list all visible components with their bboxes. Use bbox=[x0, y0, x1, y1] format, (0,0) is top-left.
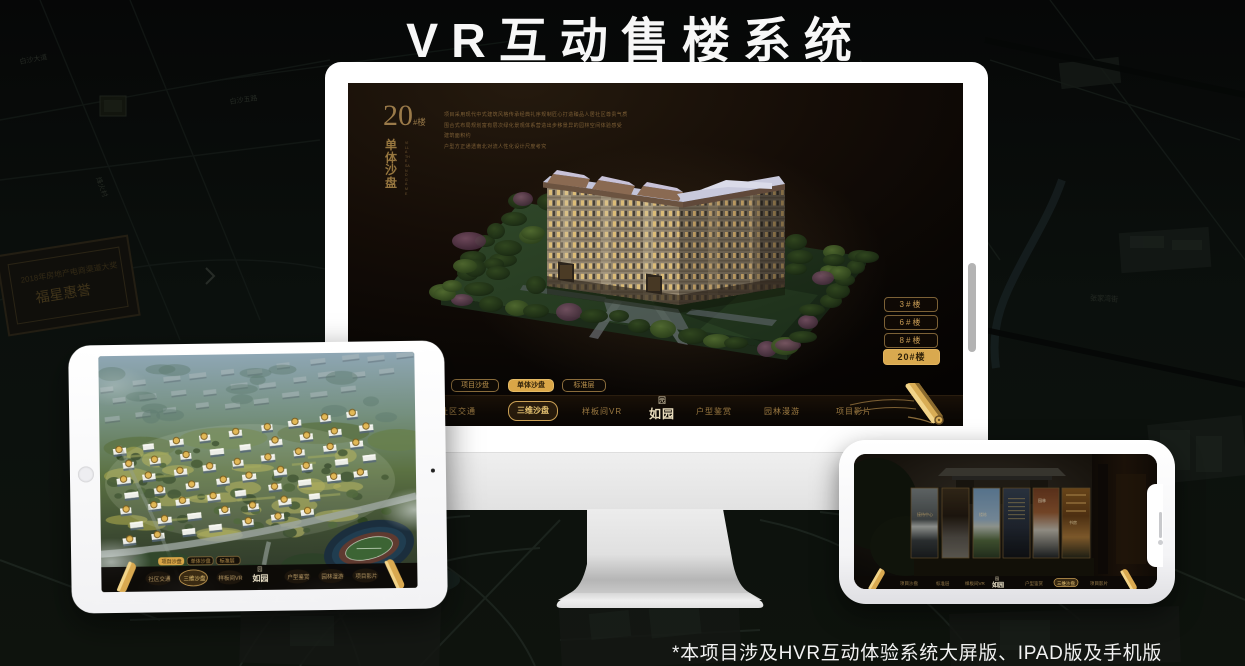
svg-text:样板间VR: 样板间VR bbox=[965, 580, 986, 587]
svg-text:如园: 如园 bbox=[992, 581, 1004, 589]
svg-text:项目影片: 项目影片 bbox=[1090, 580, 1108, 587]
svg-text:户型鉴赏: 户型鉴赏 bbox=[1025, 580, 1043, 587]
svg-text:单体沙盘: 单体沙盘 bbox=[191, 558, 211, 565]
svg-text:标准层: 标准层 bbox=[220, 557, 235, 564]
svg-text:如园: 如园 bbox=[252, 573, 268, 583]
svg-text:园: 园 bbox=[257, 567, 262, 573]
svg-text:项目沙盘: 项目沙盘 bbox=[162, 558, 182, 565]
svg-text:标准层: 标准层 bbox=[936, 580, 950, 587]
svg-text:项目沙盘: 项目沙盘 bbox=[900, 580, 918, 587]
svg-text:园: 园 bbox=[995, 575, 999, 581]
svg-text:三维沙盘: 三维沙盘 bbox=[1057, 580, 1075, 587]
